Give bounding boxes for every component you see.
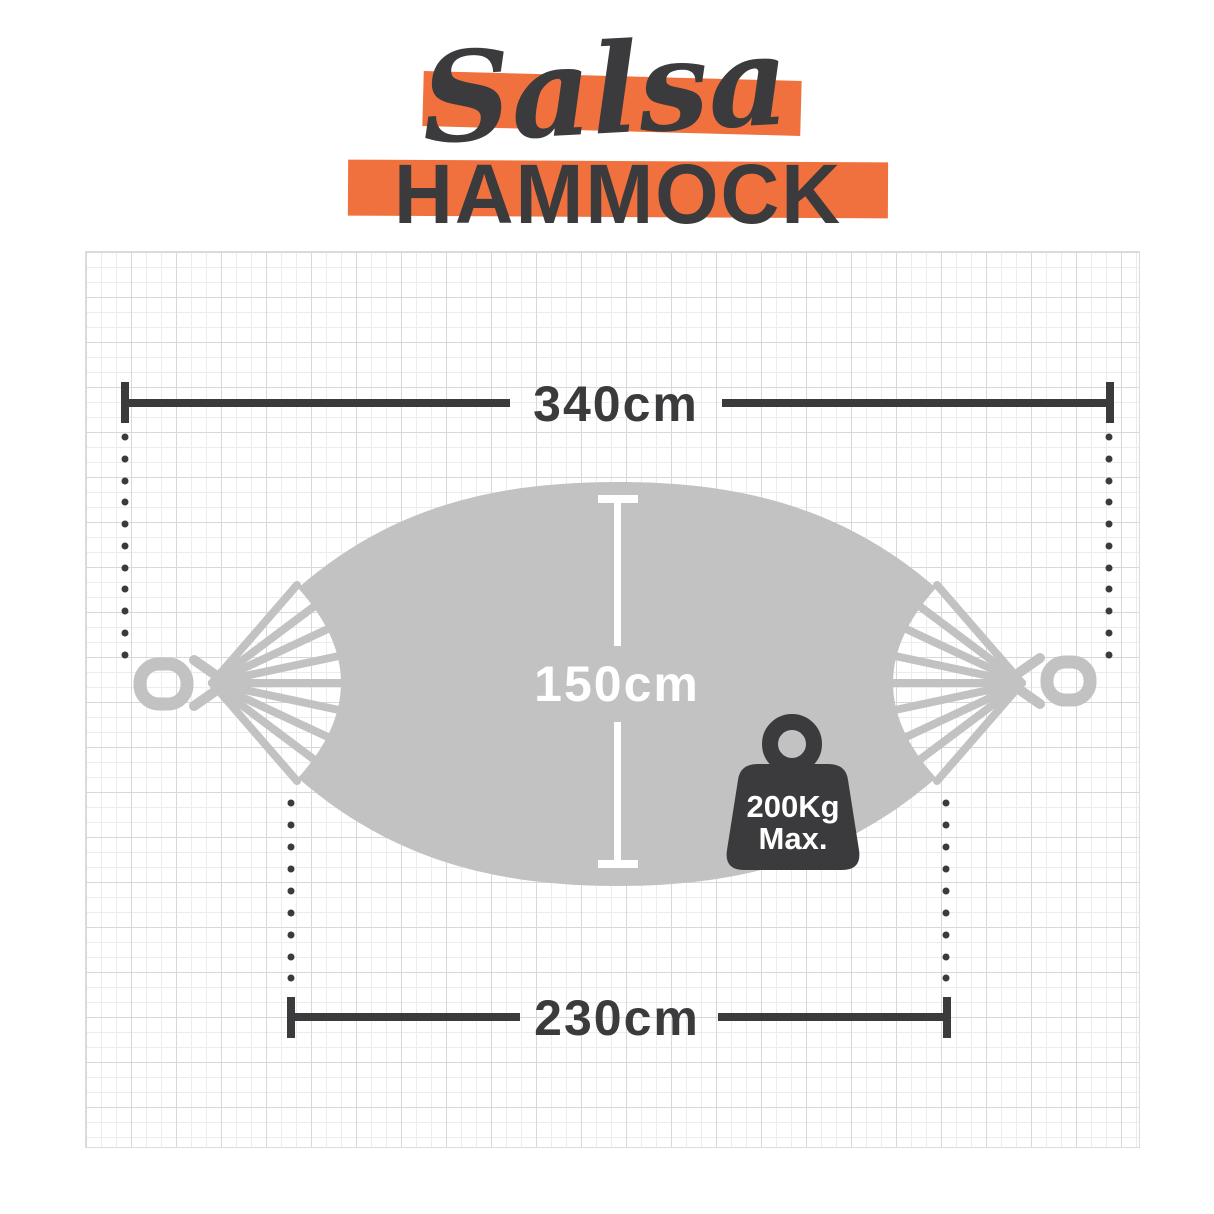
dimension-230-label: 230cm [534,990,700,1046]
weight-label-line1: 200Kg [746,789,839,824]
infographic-page: HAMMOCK Salsa [0,0,1214,1214]
dotted-guide-left-outer [122,434,129,659]
hammock-ring-left [140,664,187,704]
hammock-diagram-svg: 150cm 200Kg Max. 340cm 230cm [0,0,1214,1214]
dotted-guide-left-inner [288,800,295,982]
dimension-340-label: 340cm [533,376,699,432]
weight-label-line2: Max. [759,821,828,856]
dotted-guide-right-outer [1106,434,1113,659]
dotted-guide-right-inner [943,800,950,982]
hammock-ring-right [1047,662,1090,700]
dimension-150-label: 150cm [534,656,700,712]
